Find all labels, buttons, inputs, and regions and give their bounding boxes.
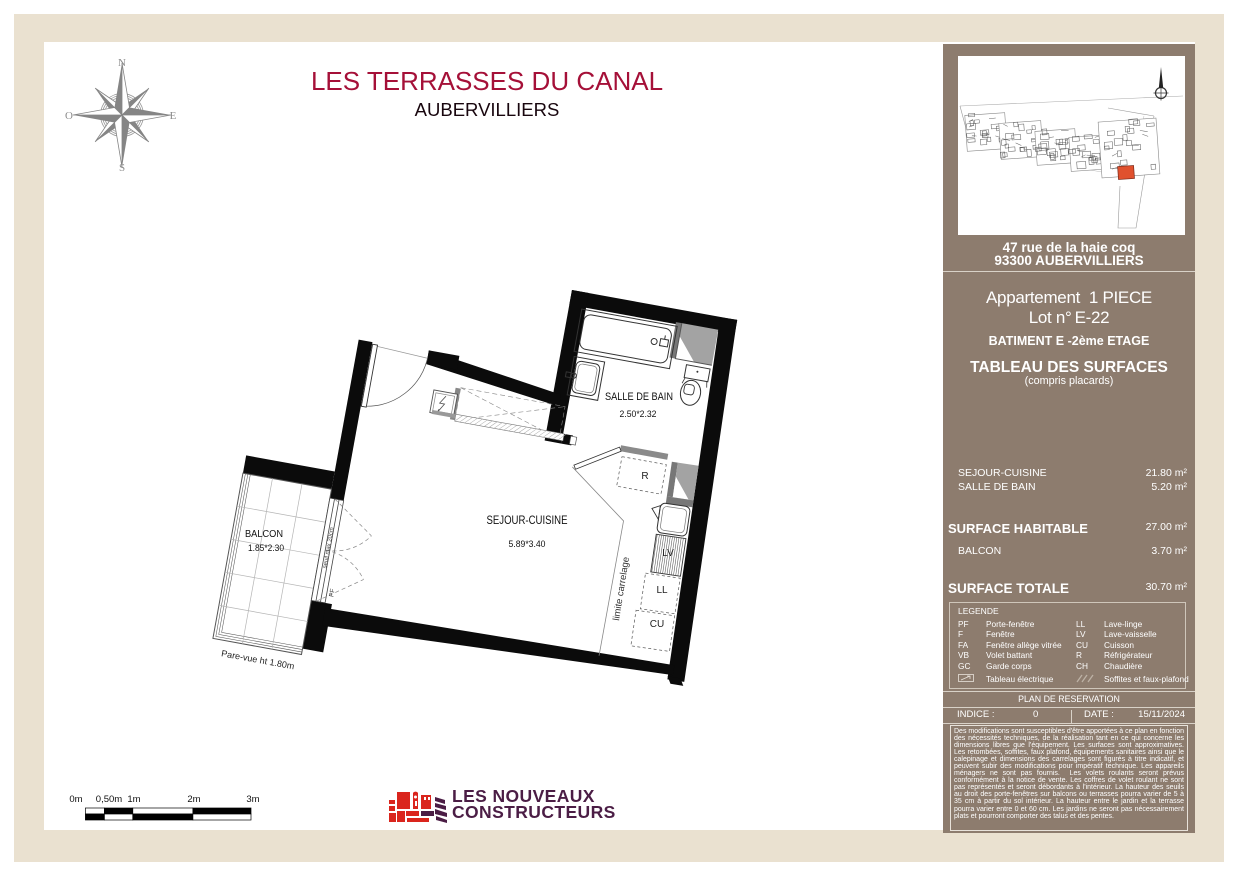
svg-text:SALLE DE BAIN: SALLE DE BAIN [605, 391, 673, 403]
svg-text:5.89*3.40: 5.89*3.40 [509, 539, 546, 550]
svg-text:CU: CU [650, 619, 664, 630]
svg-text:0m: 0m [69, 794, 82, 805]
svg-text:BALCON: BALCON [245, 528, 283, 540]
svg-text:LL: LL [656, 585, 668, 596]
svg-text:2m: 2m [187, 794, 200, 805]
svg-text:limite carrelage: limite carrelage [611, 556, 632, 621]
svg-text:3m: 3m [246, 794, 259, 805]
svg-text:SEJOUR-CUISINE: SEJOUR-CUISINE [487, 515, 568, 527]
svg-text:LV: LV [662, 548, 674, 559]
svg-text:2.50*2.32: 2.50*2.32 [620, 409, 657, 420]
svg-text:1.85*2.30: 1.85*2.30 [248, 543, 284, 554]
svg-text:0,50m: 0,50m [96, 794, 122, 805]
svg-text:PF: PF [328, 588, 336, 597]
svg-text:1m: 1m [127, 794, 140, 805]
svg-text:R: R [641, 471, 648, 482]
